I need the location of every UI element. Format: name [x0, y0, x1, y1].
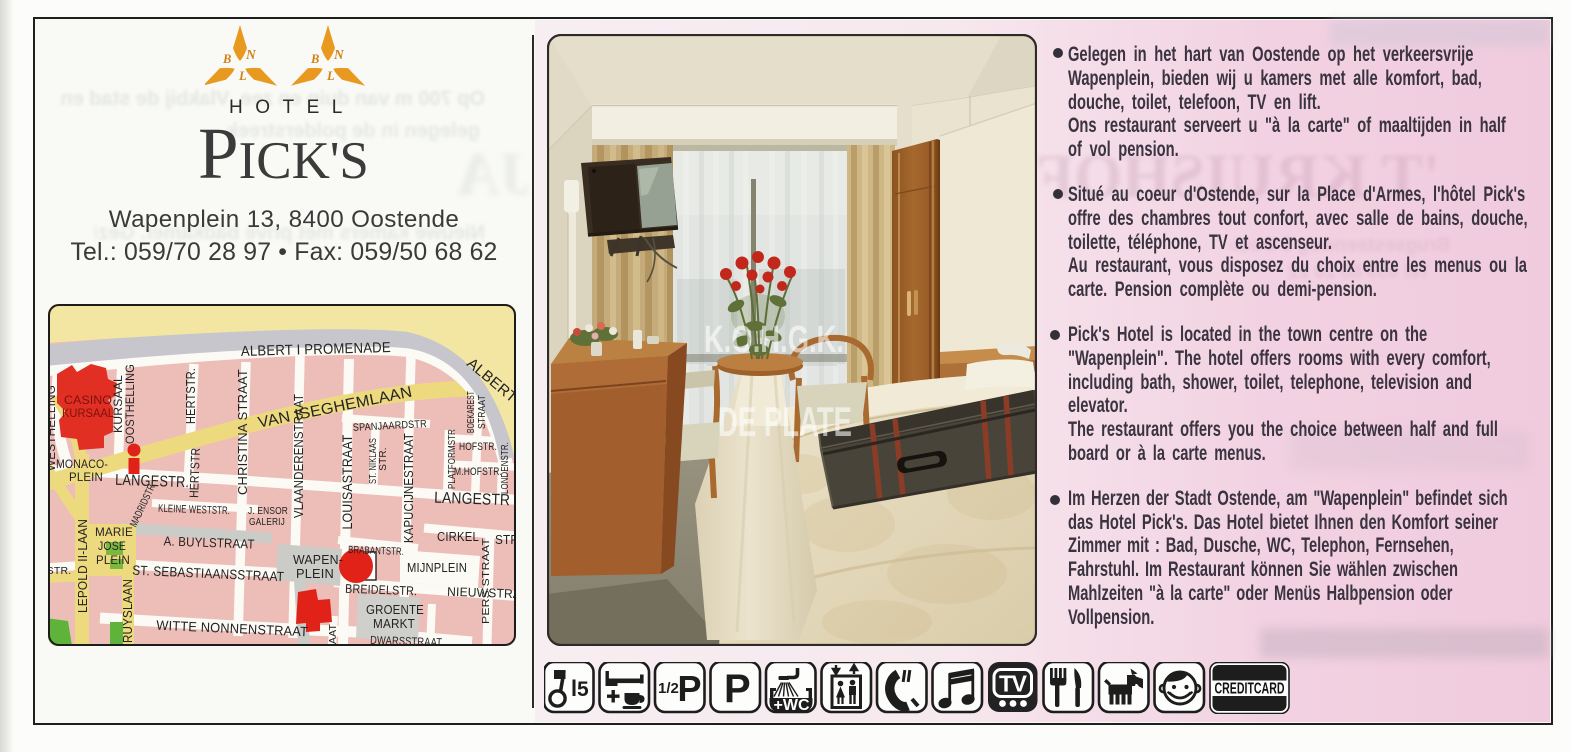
svg-text:CREDITCARD: CREDITCARD	[1215, 681, 1285, 698]
svg-text:PLEIN: PLEIN	[69, 470, 103, 484]
svg-text:OOSTHELLING: OOSTHELLING	[123, 364, 137, 444]
svg-text:1/2: 1/2	[658, 680, 679, 697]
svg-text:LOUISASTRAAT: LOUISASTRAAT	[340, 435, 355, 530]
svg-text:BREIDELSTR.: BREIDELSTR.	[345, 582, 417, 599]
svg-text:HERTSTR.: HERTSTR.	[184, 368, 198, 424]
svg-text:JOSE: JOSE	[98, 539, 126, 553]
svg-text:LEPOLD II-LAAN: LEPOLD II-LAAN	[76, 519, 90, 613]
svg-text:LSTR.: LSTR.	[48, 565, 71, 577]
svg-text:N: N	[245, 47, 257, 62]
svg-text:A. BUYLSTRAAT: A. BUYLSTRAAT	[163, 533, 254, 551]
svg-text:KAPUCIJNESTRAAT: KAPUCIJNESTRAAT	[401, 433, 416, 543]
svg-text:CHRISTINA STRAAT: CHRISTINA STRAAT	[235, 369, 250, 495]
svg-text:GROENTE: GROENTE	[366, 603, 424, 617]
svg-text:5: 5	[577, 678, 589, 701]
svg-text:GALERIJ: GALERIJ	[249, 517, 285, 528]
svg-text:TV: TV	[999, 671, 1028, 697]
svg-text:PLATFORMSTR: PLATFORMSTR	[446, 429, 458, 489]
svg-text:+WC: +WC	[774, 697, 810, 714]
svg-text:VLAANDERENSTRAAT: VLAANDERENSTRAAT	[291, 394, 306, 518]
svg-text:CIRKEL: CIRKEL	[437, 530, 479, 544]
svg-text:P: P	[724, 667, 751, 711]
svg-text:PLEIN: PLEIN	[96, 553, 130, 567]
svg-text:M.HOFSTR.: M.HOFSTR.	[454, 466, 502, 478]
svg-text:MARIE: MARIE	[95, 525, 133, 539]
svg-text:KLEINE WESTSTR.: KLEINE WESTSTR.	[158, 503, 230, 518]
svg-text:B: B	[222, 52, 231, 66]
svg-text:KURSAAL: KURSAAL	[62, 406, 114, 420]
svg-text:LONDENSTR.: LONDENSTR.	[499, 442, 511, 494]
svg-text:BRABANTSTR.: BRABANTSTR.	[348, 544, 404, 558]
svg-text:K.O.H.G.K.: K.O.H.G.K.	[704, 319, 844, 361]
svg-text:MARKT: MARKT	[373, 617, 415, 631]
svg-text:STR.: STR.	[378, 447, 389, 471]
svg-text:STRAAT: STRAAT	[477, 395, 488, 429]
svg-text:L: L	[238, 69, 247, 83]
svg-text:PERS STRAAT: PERS STRAAT	[480, 538, 492, 624]
svg-text:MIJNPLEIN: MIJNPLEIN	[407, 561, 467, 575]
svg-text:LANGESTR: LANGESTR	[434, 490, 511, 510]
svg-text:DE PLATE: DE PLATE	[718, 398, 852, 445]
svg-text:PLEIN: PLEIN	[296, 566, 334, 581]
svg-text:BOEKAREST: BOEKAREST	[466, 391, 477, 433]
svg-text:STR: STR	[495, 533, 516, 547]
svg-text:RUYSLAAN: RUYSLAAN	[121, 579, 135, 643]
svg-text:HERTSTR: HERTSTR	[187, 448, 203, 498]
svg-text:P: P	[678, 668, 702, 709]
svg-text:MONACO-: MONACO-	[56, 457, 108, 471]
svg-text:J. ENSOR: J. ENSOR	[248, 506, 288, 517]
svg-text:HOFSTR.: HOFSTR.	[459, 441, 497, 453]
svg-text:CASINO: CASINO	[64, 393, 112, 407]
svg-text:WAPEN-: WAPEN-	[293, 552, 343, 567]
svg-text:AAT: AAT	[327, 623, 339, 644]
